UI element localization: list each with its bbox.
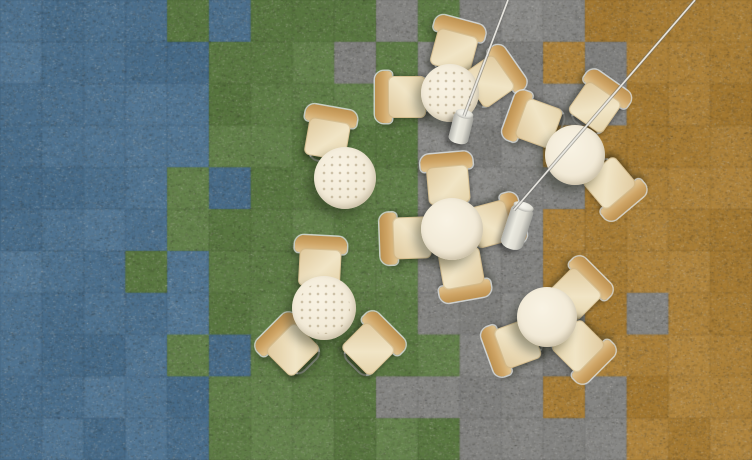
round-cafe-table [292,276,356,340]
furniture-layer [0,0,752,460]
round-cafe-table [545,125,605,185]
round-cafe-table [314,147,376,209]
round-cafe-table [517,287,577,347]
scene-overhead-cafe [0,0,752,460]
round-cafe-table [421,198,483,260]
